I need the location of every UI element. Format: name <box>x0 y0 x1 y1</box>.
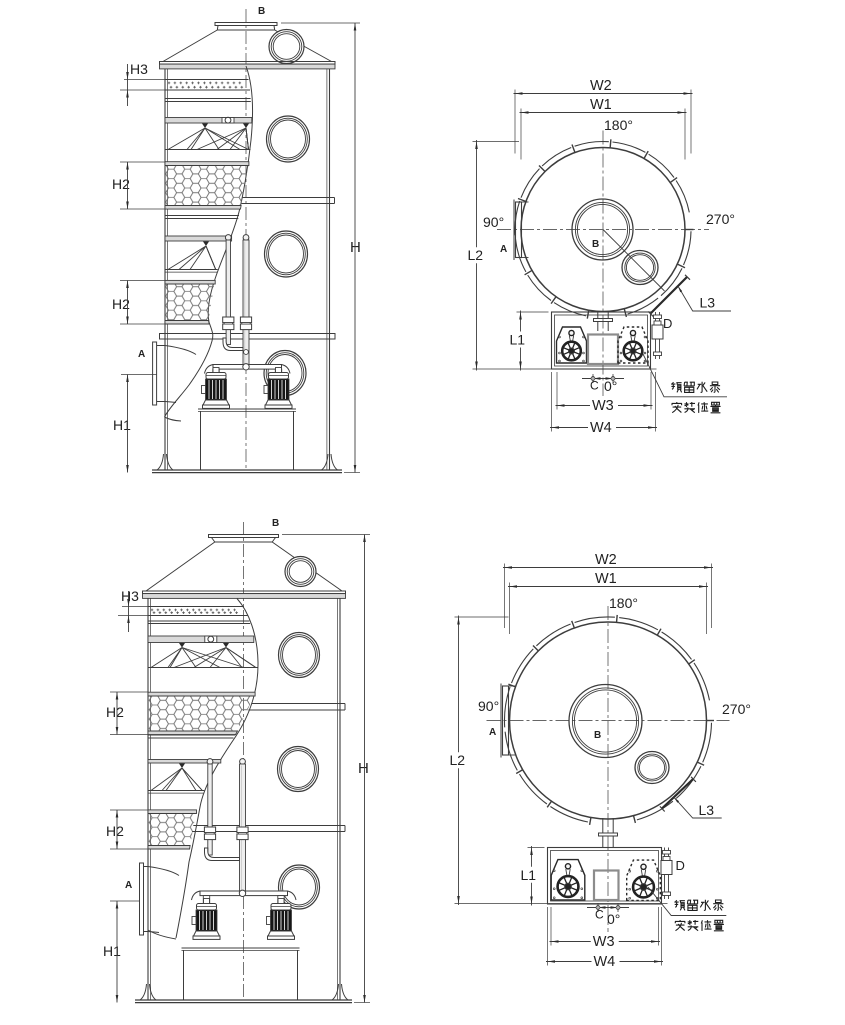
svg-text:H: H <box>358 760 369 777</box>
svg-text:W1: W1 <box>595 571 617 587</box>
svg-text:L2: L2 <box>468 247 484 263</box>
svg-text:270°: 270° <box>706 211 735 227</box>
svg-text:A: A <box>138 349 145 360</box>
svg-text:90°: 90° <box>483 214 504 230</box>
svg-text:H3: H3 <box>121 588 139 604</box>
svg-text:D: D <box>676 858 685 873</box>
svg-text:C: C <box>590 379 599 393</box>
svg-text:H1: H1 <box>113 417 131 433</box>
svg-text:W2: W2 <box>590 78 612 94</box>
svg-text:0°: 0° <box>607 911 620 927</box>
svg-text:A: A <box>489 727 496 738</box>
svg-text:L2: L2 <box>450 752 466 768</box>
svg-text:W1: W1 <box>590 97 612 113</box>
svg-text:L3: L3 <box>699 802 715 818</box>
svg-text:C: C <box>595 908 604 922</box>
svg-text:L1: L1 <box>510 332 526 348</box>
svg-text:W2: W2 <box>595 552 617 568</box>
svg-text:W4: W4 <box>594 954 616 970</box>
svg-text:180°: 180° <box>609 595 638 611</box>
svg-text:90°: 90° <box>478 698 499 714</box>
svg-text:B: B <box>258 6 265 17</box>
svg-text:270°: 270° <box>722 701 751 717</box>
svg-text:B: B <box>592 239 599 250</box>
svg-text:W3: W3 <box>593 934 615 950</box>
svg-text:W4: W4 <box>590 420 612 436</box>
svg-text:H2: H2 <box>106 704 124 720</box>
svg-text:H3: H3 <box>130 61 148 77</box>
svg-text:L3: L3 <box>700 295 716 311</box>
svg-text:B: B <box>272 518 279 529</box>
svg-text:D: D <box>663 316 672 331</box>
svg-text:H1: H1 <box>103 943 121 959</box>
svg-text:H2: H2 <box>106 823 124 839</box>
svg-text:L1: L1 <box>521 867 537 883</box>
svg-text:A: A <box>500 244 507 255</box>
svg-text:B: B <box>594 730 601 741</box>
svg-text:180°: 180° <box>604 117 633 133</box>
svg-text:W3: W3 <box>592 398 614 414</box>
svg-text:0°: 0° <box>604 378 617 394</box>
svg-text:A: A <box>125 880 132 891</box>
